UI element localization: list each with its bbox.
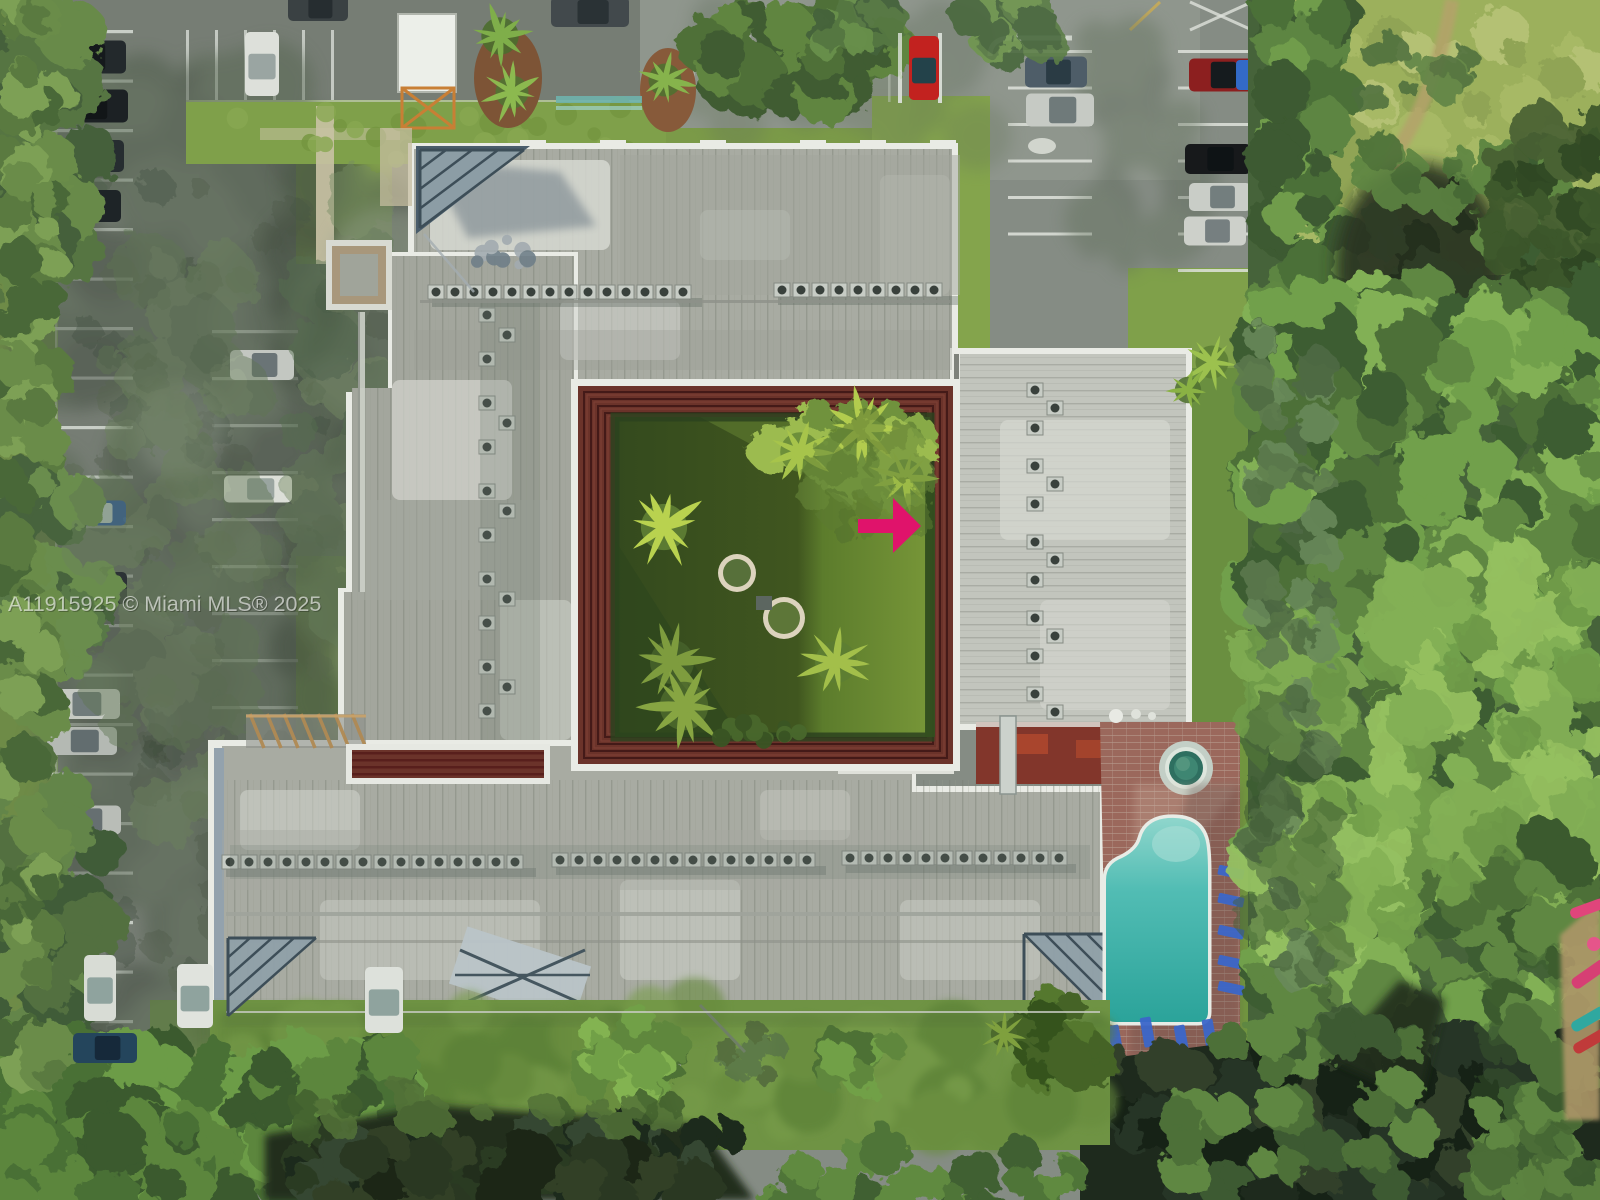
- svg-text:A11915925 © Miami MLS® 2025: A11915925 © Miami MLS® 2025: [8, 592, 321, 616]
